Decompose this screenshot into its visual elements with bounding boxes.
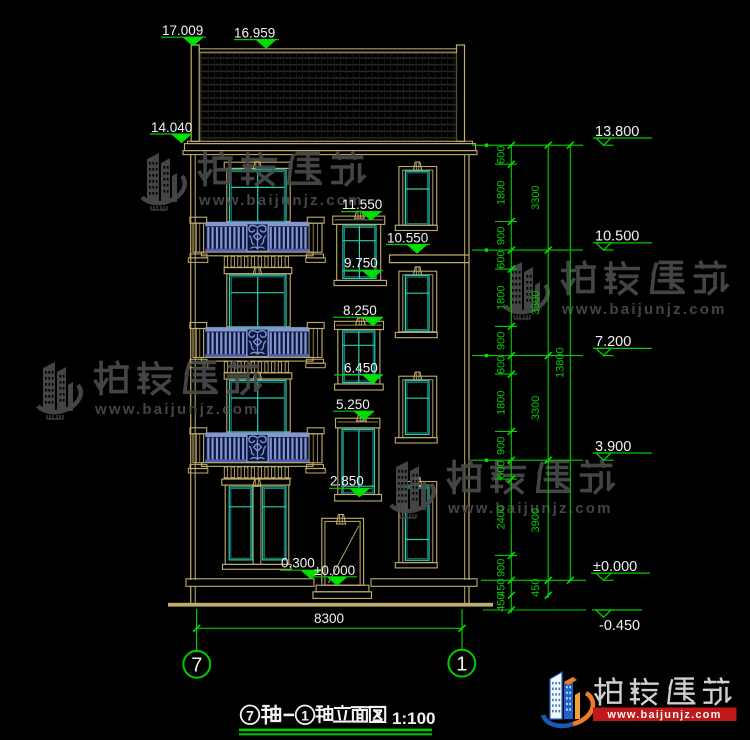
svg-text:www.baijunjz.com: www.baijunjz.com <box>94 401 260 418</box>
svg-text:www.baijunjz.com: www.baijunjz.com <box>198 192 364 209</box>
svg-text:3300: 3300 <box>530 291 542 315</box>
svg-text:1: 1 <box>301 707 309 723</box>
svg-text:17.009: 17.009 <box>162 23 203 38</box>
svg-text:600: 600 <box>496 250 508 268</box>
svg-text:1800: 1800 <box>496 181 508 205</box>
svg-text:600: 600 <box>496 356 508 374</box>
svg-text:±0.000: ±0.000 <box>314 563 355 578</box>
svg-text:900: 900 <box>496 559 508 577</box>
svg-text:8300: 8300 <box>314 611 344 626</box>
svg-text:9.750: 9.750 <box>344 256 378 271</box>
svg-text:0.300: 0.300 <box>281 556 315 571</box>
svg-text:1800: 1800 <box>496 390 508 414</box>
svg-text:600: 600 <box>496 146 508 164</box>
svg-text:3300: 3300 <box>530 185 542 209</box>
svg-text:450: 450 <box>530 579 542 597</box>
svg-text:900: 900 <box>496 227 508 245</box>
svg-text:11.550: 11.550 <box>342 197 382 212</box>
svg-text:10.550: 10.550 <box>387 231 428 246</box>
svg-text:16.959: 16.959 <box>234 26 275 41</box>
svg-text:1: 1 <box>456 653 467 675</box>
svg-text:3300: 3300 <box>530 396 542 420</box>
svg-text:450: 450 <box>496 593 508 611</box>
svg-text:900: 900 <box>496 332 508 350</box>
svg-text:www.baijunjz.com: www.baijunjz.com <box>561 301 727 318</box>
svg-text:7: 7 <box>246 707 254 723</box>
svg-text:1800: 1800 <box>496 285 508 309</box>
svg-text:5.250: 5.250 <box>336 397 370 412</box>
svg-text:1:100: 1:100 <box>392 709 435 728</box>
svg-text:-0.450: -0.450 <box>599 618 640 634</box>
svg-text:13800: 13800 <box>555 347 567 378</box>
svg-text:2.850: 2.850 <box>330 474 364 489</box>
svg-text:14.040: 14.040 <box>151 120 192 135</box>
svg-text:6.450: 6.450 <box>344 361 378 376</box>
svg-text:www.baijunjz.com: www.baijunjz.com <box>606 709 721 721</box>
svg-text:7: 7 <box>191 655 202 677</box>
svg-text:8.250: 8.250 <box>343 303 377 318</box>
svg-text:600: 600 <box>496 460 508 478</box>
svg-text:2400: 2400 <box>496 505 508 529</box>
svg-text:3900: 3900 <box>530 508 542 532</box>
svg-text:900: 900 <box>496 437 508 455</box>
